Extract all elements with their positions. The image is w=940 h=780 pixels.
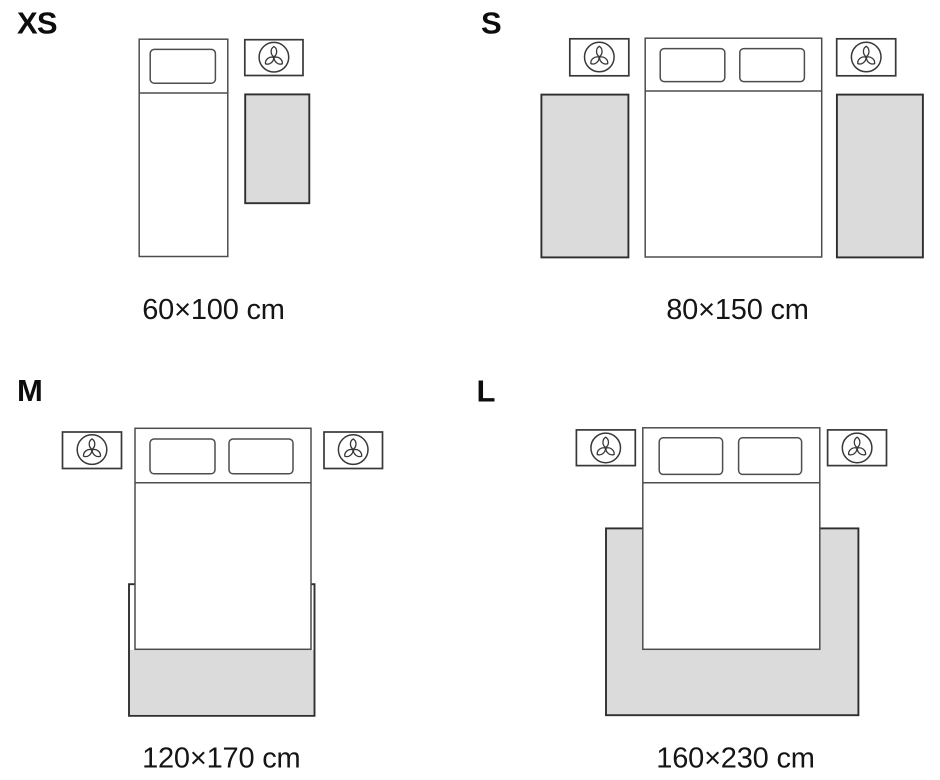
svg-text:160×230 cm: 160×230 cm <box>656 743 814 775</box>
svg-text:XS: XS <box>17 6 57 41</box>
svg-text:120×170 cm: 120×170 cm <box>142 743 300 775</box>
svg-text:M: M <box>17 373 42 408</box>
svg-text:L: L <box>477 374 495 409</box>
svg-text:60×100 cm: 60×100 cm <box>142 294 285 326</box>
svg-text:80×150 cm: 80×150 cm <box>666 294 809 326</box>
svg-text:S: S <box>481 6 501 41</box>
